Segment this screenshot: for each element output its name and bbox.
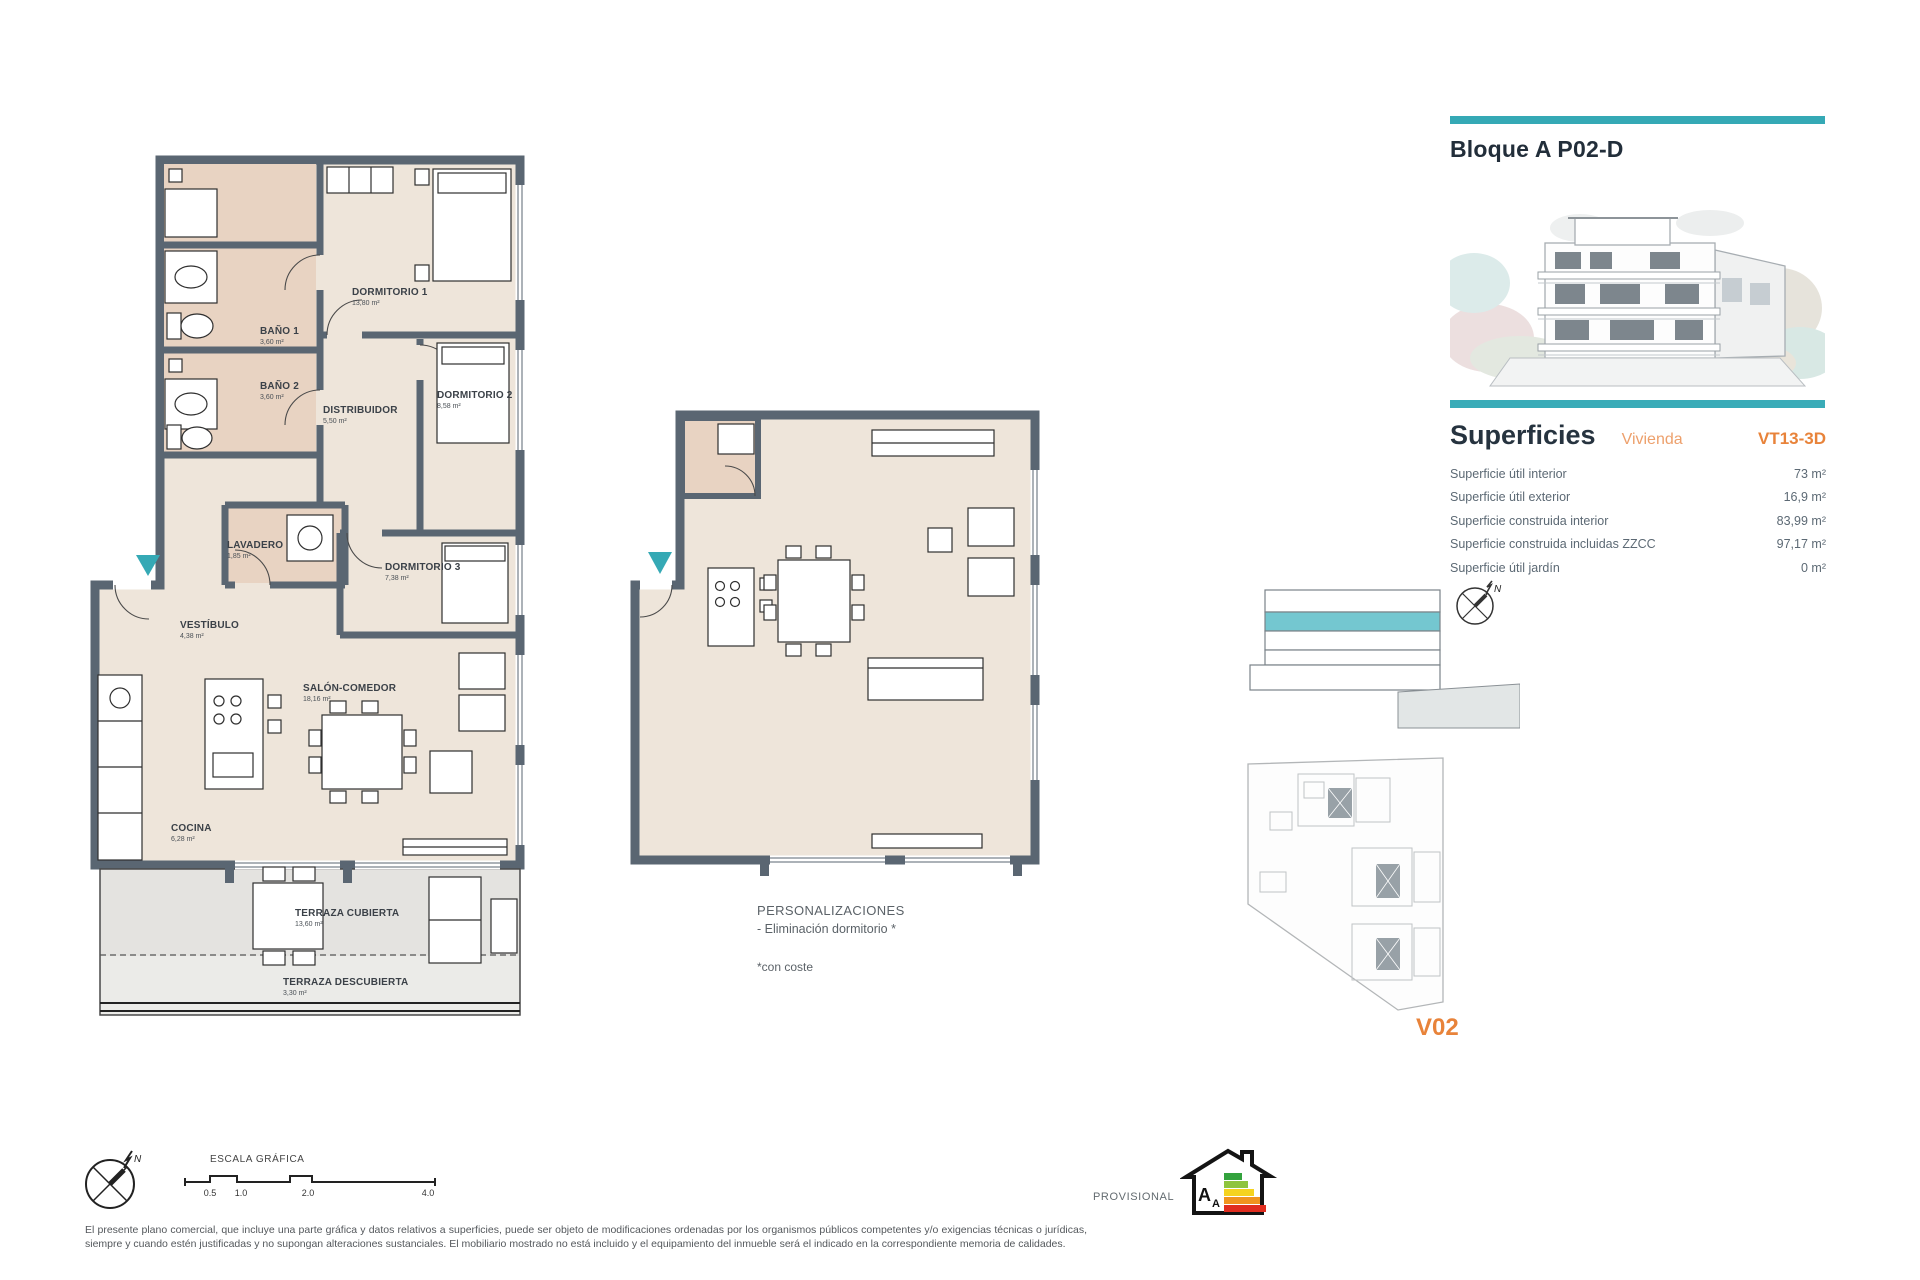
floorplan-main: DORMITORIO 1 13,80 m² BAÑO 1 3,60 m² BAÑ…: [85, 155, 545, 1025]
label-terraza-descubierta: TERRAZA DESCUBIERTA: [283, 977, 408, 988]
plan-sheet: DORMITORIO 1 13,80 m² BAÑO 1 3,60 m² BAÑ…: [0, 0, 1920, 1280]
area-lavadero: 1,85 m²: [227, 553, 251, 560]
superficie-row: Superficie construida interior 83,99 m²: [1450, 509, 1826, 533]
label-vestibulo: VESTÍBULO: [180, 618, 239, 631]
label-bano2: BAÑO 2: [260, 379, 299, 392]
superficie-value: 0 m²: [1801, 561, 1826, 575]
scale-tick: 1.0: [235, 1188, 248, 1198]
label-bano1: BAÑO 1: [260, 324, 299, 337]
personalizaciones-item: - Eliminación dormitorio *: [757, 922, 896, 936]
disclaimer-text: El presente plano comercial, que incluye…: [85, 1224, 1087, 1251]
section-ground: [1398, 684, 1520, 728]
area-distribuidor: 5,50 m²: [323, 418, 347, 425]
area-vestibulo: 4,38 m²: [180, 633, 204, 640]
energy-letter: A: [1198, 1185, 1211, 1205]
entry-door-gap: [113, 581, 151, 590]
compass-icon: N: [80, 1148, 150, 1218]
energy-letter-small: A: [1212, 1198, 1220, 1210]
teal-accent-bar: [1450, 116, 1825, 124]
superficie-value: 83,99 m²: [1777, 514, 1826, 528]
superficie-label: Superficie útil interior: [1450, 467, 1567, 481]
superficies-table: Superficie útil interior 73 m² Superfici…: [1450, 462, 1826, 580]
label-cocina: COCINA: [171, 823, 212, 834]
superficies-header: Superficies Vivienda VT13-3D: [1450, 420, 1826, 451]
label-terraza-cubierta: TERRAZA CUBIERTA: [295, 908, 399, 919]
compass-icon: N: [1457, 581, 1502, 624]
entry-door-gap-alt: [640, 581, 672, 590]
superficies-title: Superficies: [1450, 420, 1596, 451]
water-line: [1450, 400, 1825, 408]
label-dormitorio1: DORMITORIO 1: [352, 287, 428, 298]
page-title: Bloque A P02-D: [1450, 136, 1624, 163]
version-label: V02: [1416, 1014, 1459, 1042]
personalizaciones-title: PERSONALIZACIONES: [757, 903, 905, 918]
area-salon: 18,16 m²: [303, 696, 331, 703]
scale-bar: ESCALA GRÁFICA 0.5 1.0 2.0 4.0: [180, 1148, 450, 1203]
area-bano2: 3,60 m²: [260, 394, 284, 401]
energy-rating-icon: A A: [1180, 1143, 1280, 1223]
compass-north-label: N: [134, 1154, 142, 1165]
floorplan-alt: [620, 410, 1050, 880]
scale-tick: 0.5: [204, 1188, 217, 1198]
entry-arrow-icon-alt: [648, 552, 672, 574]
highlighted-floor: [1265, 612, 1440, 631]
superficie-value: 97,17 m²: [1777, 537, 1826, 551]
provisional-label: PROVISIONAL: [1093, 1191, 1174, 1203]
scale-label: ESCALA GRÁFICA: [210, 1152, 305, 1165]
superficie-row: Superficie útil jardín 0 m²: [1450, 556, 1826, 580]
superficies-code: VT13-3D: [1758, 429, 1826, 449]
area-dormitorio1: 13,80 m²: [352, 300, 380, 307]
label-dormitorio3: DORMITORIO 3: [385, 562, 461, 573]
superficie-row: Superficie útil exterior 16,9 m²: [1450, 486, 1826, 510]
label-lavadero: LAVADERO: [227, 540, 283, 551]
superficie-label: Superficie útil jardín: [1450, 561, 1560, 575]
section-diagram: N: [1248, 580, 1520, 730]
area-bano1: 3,60 m²: [260, 339, 284, 346]
superficie-label: Superficie construida incluidas ZZCC: [1450, 537, 1656, 551]
area-dormitorio2: 8,58 m²: [437, 403, 461, 410]
superficie-row: Superficie útil interior 73 m²: [1450, 462, 1826, 486]
scale-tick: 2.0: [302, 1188, 315, 1198]
scale-tick: 4.0: [422, 1188, 435, 1198]
personalizaciones-footnote: *con coste: [757, 960, 813, 974]
superficie-label: Superficie construida interior: [1450, 514, 1608, 528]
area-dormitorio3: 7,38 m²: [385, 575, 409, 582]
label-salon: SALÓN-COMEDOR: [303, 681, 397, 694]
superficie-value: 73 m²: [1794, 467, 1826, 481]
superficie-row: Superficie construida incluidas ZZCC 97,…: [1450, 533, 1826, 557]
area-cocina: 6,28 m²: [171, 836, 195, 843]
label-dormitorio2: DORMITORIO 2: [437, 390, 513, 401]
area-terraza-cubierta: 13,60 m²: [295, 921, 323, 928]
area-terraza-descubierta: 3,30 m²: [283, 990, 307, 997]
superficie-value: 16,9 m²: [1784, 490, 1826, 504]
compass-north-label: N: [1494, 584, 1502, 595]
superficie-label: Superficie útil exterior: [1450, 490, 1570, 504]
section-floors: [1250, 590, 1440, 690]
label-distribuidor: DISTRIBUIDOR: [323, 405, 398, 416]
scale-line: [185, 1176, 435, 1186]
site-plan: [1240, 752, 1450, 1014]
superficies-subtitle: Vivienda: [1622, 431, 1683, 449]
building-sketch: [1450, 188, 1825, 413]
